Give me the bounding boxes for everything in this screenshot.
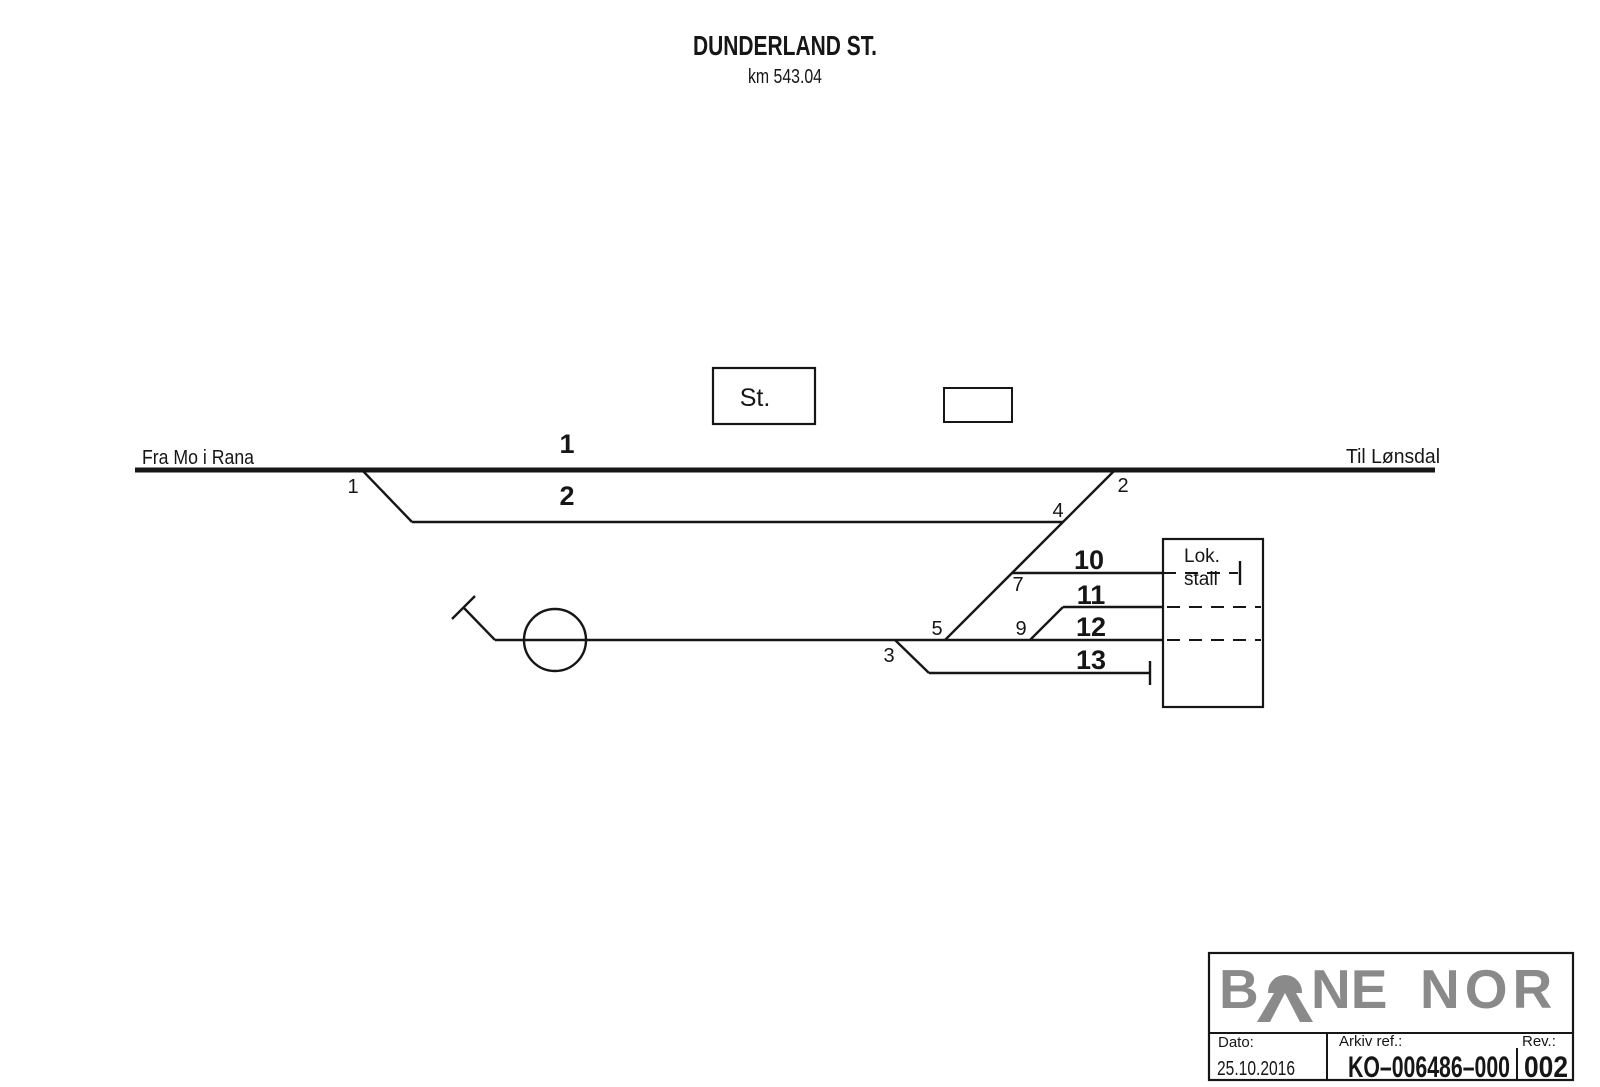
track-12-label: 12	[1076, 612, 1106, 642]
station-km: km 543.04	[748, 66, 822, 88]
date-label: Dato:	[1218, 1034, 1254, 1051]
switch-7-label: 7	[1012, 574, 1023, 596]
station-building-label: St.	[740, 384, 771, 412]
banenor-logo-letters-nor: NOR	[1420, 958, 1557, 1020]
direction-to-label: Til Lønsdal	[1346, 446, 1440, 468]
archive-ref-value: KO–006486–000	[1348, 1051, 1510, 1084]
schematic-svg: DUNDERLAND ST. km 543.04 St. Fra Mo i Ra…	[0, 0, 1600, 1087]
date-value: 25.10.2016	[1217, 1058, 1295, 1080]
switch-5-label: 5	[931, 618, 942, 640]
switch-1-label: 1	[347, 476, 358, 498]
small-building-box	[944, 388, 1012, 422]
banenor-logo-letters-ne: NE	[1311, 958, 1387, 1020]
archive-ref-label: Arkiv ref.:	[1339, 1033, 1402, 1050]
switch-3-diagonal	[895, 640, 929, 673]
switch-4-label: 4	[1052, 500, 1063, 522]
direction-from-label: Fra Mo i Rana	[142, 447, 255, 469]
rev-value: 002	[1524, 1051, 1568, 1084]
track-13-label: 13	[1076, 645, 1106, 675]
track-11-label: 11	[1077, 580, 1106, 610]
switch-9-label: 9	[1015, 618, 1026, 640]
switch-2-label: 2	[1117, 475, 1128, 497]
west-stub-diagonal	[464, 608, 495, 640]
switch-9-diagonal	[1030, 607, 1063, 640]
banenor-arch-icon	[1257, 975, 1313, 1022]
track-10-label: 10	[1074, 545, 1104, 575]
switch-3-label: 3	[883, 645, 894, 667]
switch-1-diagonal	[362, 470, 412, 522]
banenor-logo-letter-b: B	[1219, 958, 1259, 1020]
loco-shed-label-line2: stall	[1184, 569, 1218, 590]
station-title: DUNDERLAND ST.	[693, 30, 877, 61]
track-1-label: 1	[559, 429, 574, 459]
track-2-label: 2	[559, 481, 574, 511]
banenor-logo: B NE NOR	[1219, 958, 1557, 1022]
track-schematic-page: DUNDERLAND ST. km 543.04 St. Fra Mo i Ra…	[0, 0, 1600, 1087]
rev-label: Rev.:	[1522, 1033, 1556, 1050]
loco-shed-label-line1: Lok.	[1184, 546, 1220, 567]
